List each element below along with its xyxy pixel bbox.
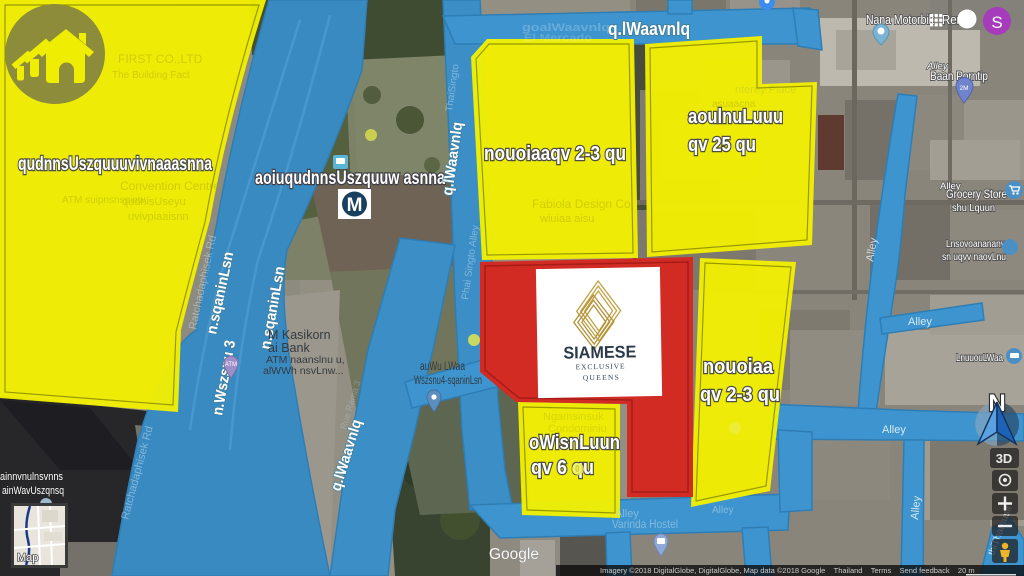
svg-text:ainWavUszqnsq: ainWavUszqnsq (2, 485, 64, 497)
svg-text:uvivpiaaisnn: uvivpiaaisnn (128, 211, 189, 223)
svg-text:nouoiaa: nouoiaa (703, 356, 774, 378)
svg-text:Map: Map (17, 552, 38, 564)
svg-text:Convention Centre: Convention Centre (120, 179, 220, 193)
svg-text:LnuuouLWaa: LnuuouLWaa (956, 352, 1003, 364)
svg-text:Alley: Alley (908, 316, 932, 328)
svg-text:Alley: Alley (882, 424, 906, 436)
svg-text:ai Bank: ai Bank (268, 341, 310, 355)
svg-text:El Mercado: El Mercado (524, 33, 592, 44)
svg-text:Grocery Store: Grocery Store (946, 187, 1007, 201)
svg-text:S: S (991, 13, 1002, 32)
svg-text:shu Lquun: shu Lquun (952, 202, 995, 214)
svg-text:qv 6 qu: qv 6 qu (531, 457, 594, 479)
svg-text:The Building Fact: The Building Fact (112, 70, 190, 81)
svg-text:sn uqvv naovLnu: sn uqvv naovLnu (942, 251, 1006, 263)
svg-text:Fabiola Design Co: Fabiola Design Co (532, 197, 631, 211)
svg-text:2M: 2M (959, 85, 968, 92)
svg-text:3D: 3D (996, 451, 1013, 466)
svg-text:nouoiaaqv 2-3 qu: nouoiaaqv 2-3 qu (484, 143, 626, 165)
svg-text:M: M (347, 195, 363, 216)
svg-text:Wszsnu4-sqaninLsn: Wszsnu4-sqaninLsn (414, 375, 482, 387)
svg-text:nterey Place: nterey Place (735, 84, 796, 96)
svg-text:alWWh nsvLnw...: alWWh nsvLnw... (263, 365, 344, 377)
svg-text:Google: Google (489, 546, 539, 563)
svg-text:Ngamsinsuk: Ngamsinsuk (543, 411, 604, 423)
svg-text:q.lWaavnlq: q.lWaavnlq (608, 19, 690, 39)
svg-text:Alley: Alley (909, 495, 923, 520)
svg-text:M Kasikorn: M Kasikorn (268, 328, 331, 342)
svg-text:Imagery ©2018 DigitalGlobe, Di: Imagery ©2018 DigitalGlobe, DigitalGlobe… (600, 566, 977, 575)
svg-text:qv 2-3 qu: qv 2-3 qu (700, 384, 780, 406)
svg-text:FIRST CO.,LTD: FIRST CO.,LTD (118, 52, 203, 66)
svg-text:wiuiaa aisu: wiuiaa aisu (539, 213, 594, 225)
svg-text:Varinda Hostel: Varinda Hostel (612, 517, 678, 531)
svg-text:aoiuqudnnsUszquuw asnna: aoiuqudnnsUszquuw asnna (255, 168, 445, 189)
svg-text:auWu LWaa: auWu LWaa (420, 361, 465, 373)
svg-text:aoulnuLuuu: aoulnuLuuu (688, 106, 783, 128)
svg-text:SIAMESE: SIAMESE (563, 342, 636, 362)
svg-text:oWisnLuun: oWisnLuun (529, 432, 620, 454)
svg-text:Lnsovoanananv: Lnsovoanananv (946, 238, 1006, 250)
svg-text:EXCLUSIVE: EXCLUSIVE (576, 362, 626, 372)
svg-text:qudnisUseyu: qudnisUseyu (122, 196, 186, 208)
svg-text:Nana Motorbik: Nana Motorbik (866, 12, 934, 27)
svg-text:qudnnsUszquuuvivnaaasnna: qudnnsUszquuuvivnaaasnna (18, 154, 212, 175)
svg-text:qv 25 qu: qv 25 qu (688, 134, 756, 156)
svg-text:ATM: ATM (225, 362, 237, 368)
svg-text:Alley: Alley (712, 505, 734, 516)
svg-text:ainnvnulnsvnns: ainnvnulnsvnns (0, 471, 63, 483)
